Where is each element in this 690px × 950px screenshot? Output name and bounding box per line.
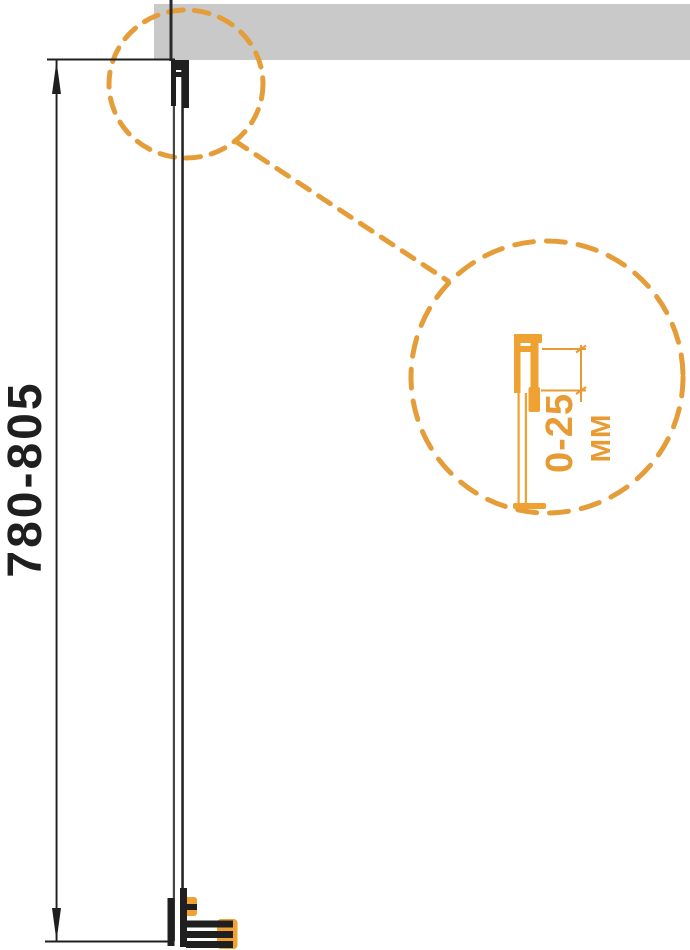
dim-extension-top: [47, 59, 175, 61]
height-dimension: [45, 59, 175, 943]
bottom-support-assembly: [168, 888, 238, 949]
dim-extension-bottom: [45, 941, 173, 943]
dim-arrow-down: [52, 908, 61, 941]
glass-edge-left-line: [173, 68, 175, 941]
wall-profile-line: [170, 0, 173, 61]
top-wall-profile: [171, 60, 189, 108]
detail-unit-label: MM: [587, 411, 615, 465]
dim-line: [56, 60, 58, 942]
detail-glass-left-line: [518, 393, 520, 507]
support-clamp-stripe: [184, 904, 198, 910]
support-arm-bar-1: [186, 921, 233, 928]
technical-drawing: 780-805 0-25 MM: [0, 0, 690, 950]
detail-glass-stop: [520, 346, 531, 352]
wall-section: [154, 4, 690, 60]
glass-edge-right-line: [181, 68, 184, 888]
detail-range-label: 0-25: [543, 392, 577, 474]
profile-right-wall: [183, 60, 190, 108]
detail-glass-bottom-edge: [513, 503, 546, 509]
callout-connector-line: [235, 141, 448, 281]
glass-panel: [173, 68, 184, 941]
dim-arrow-up: [52, 61, 61, 94]
support-right-bar: [180, 888, 187, 947]
drawing-layer: [0, 0, 690, 950]
support-arm-bar-2: [186, 931, 233, 938]
detail-right-wall: [531, 334, 539, 389]
profile-left-wall: [171, 60, 176, 106]
profile-glass-stop: [175, 72, 183, 77]
support-arm-bar-3: [186, 941, 233, 948]
detail-glass-right-line: [525, 393, 527, 507]
height-dimension-label: 780-805: [2, 377, 48, 581]
detail-left-wall: [514, 334, 521, 393]
support-left-bar: [168, 898, 175, 946]
